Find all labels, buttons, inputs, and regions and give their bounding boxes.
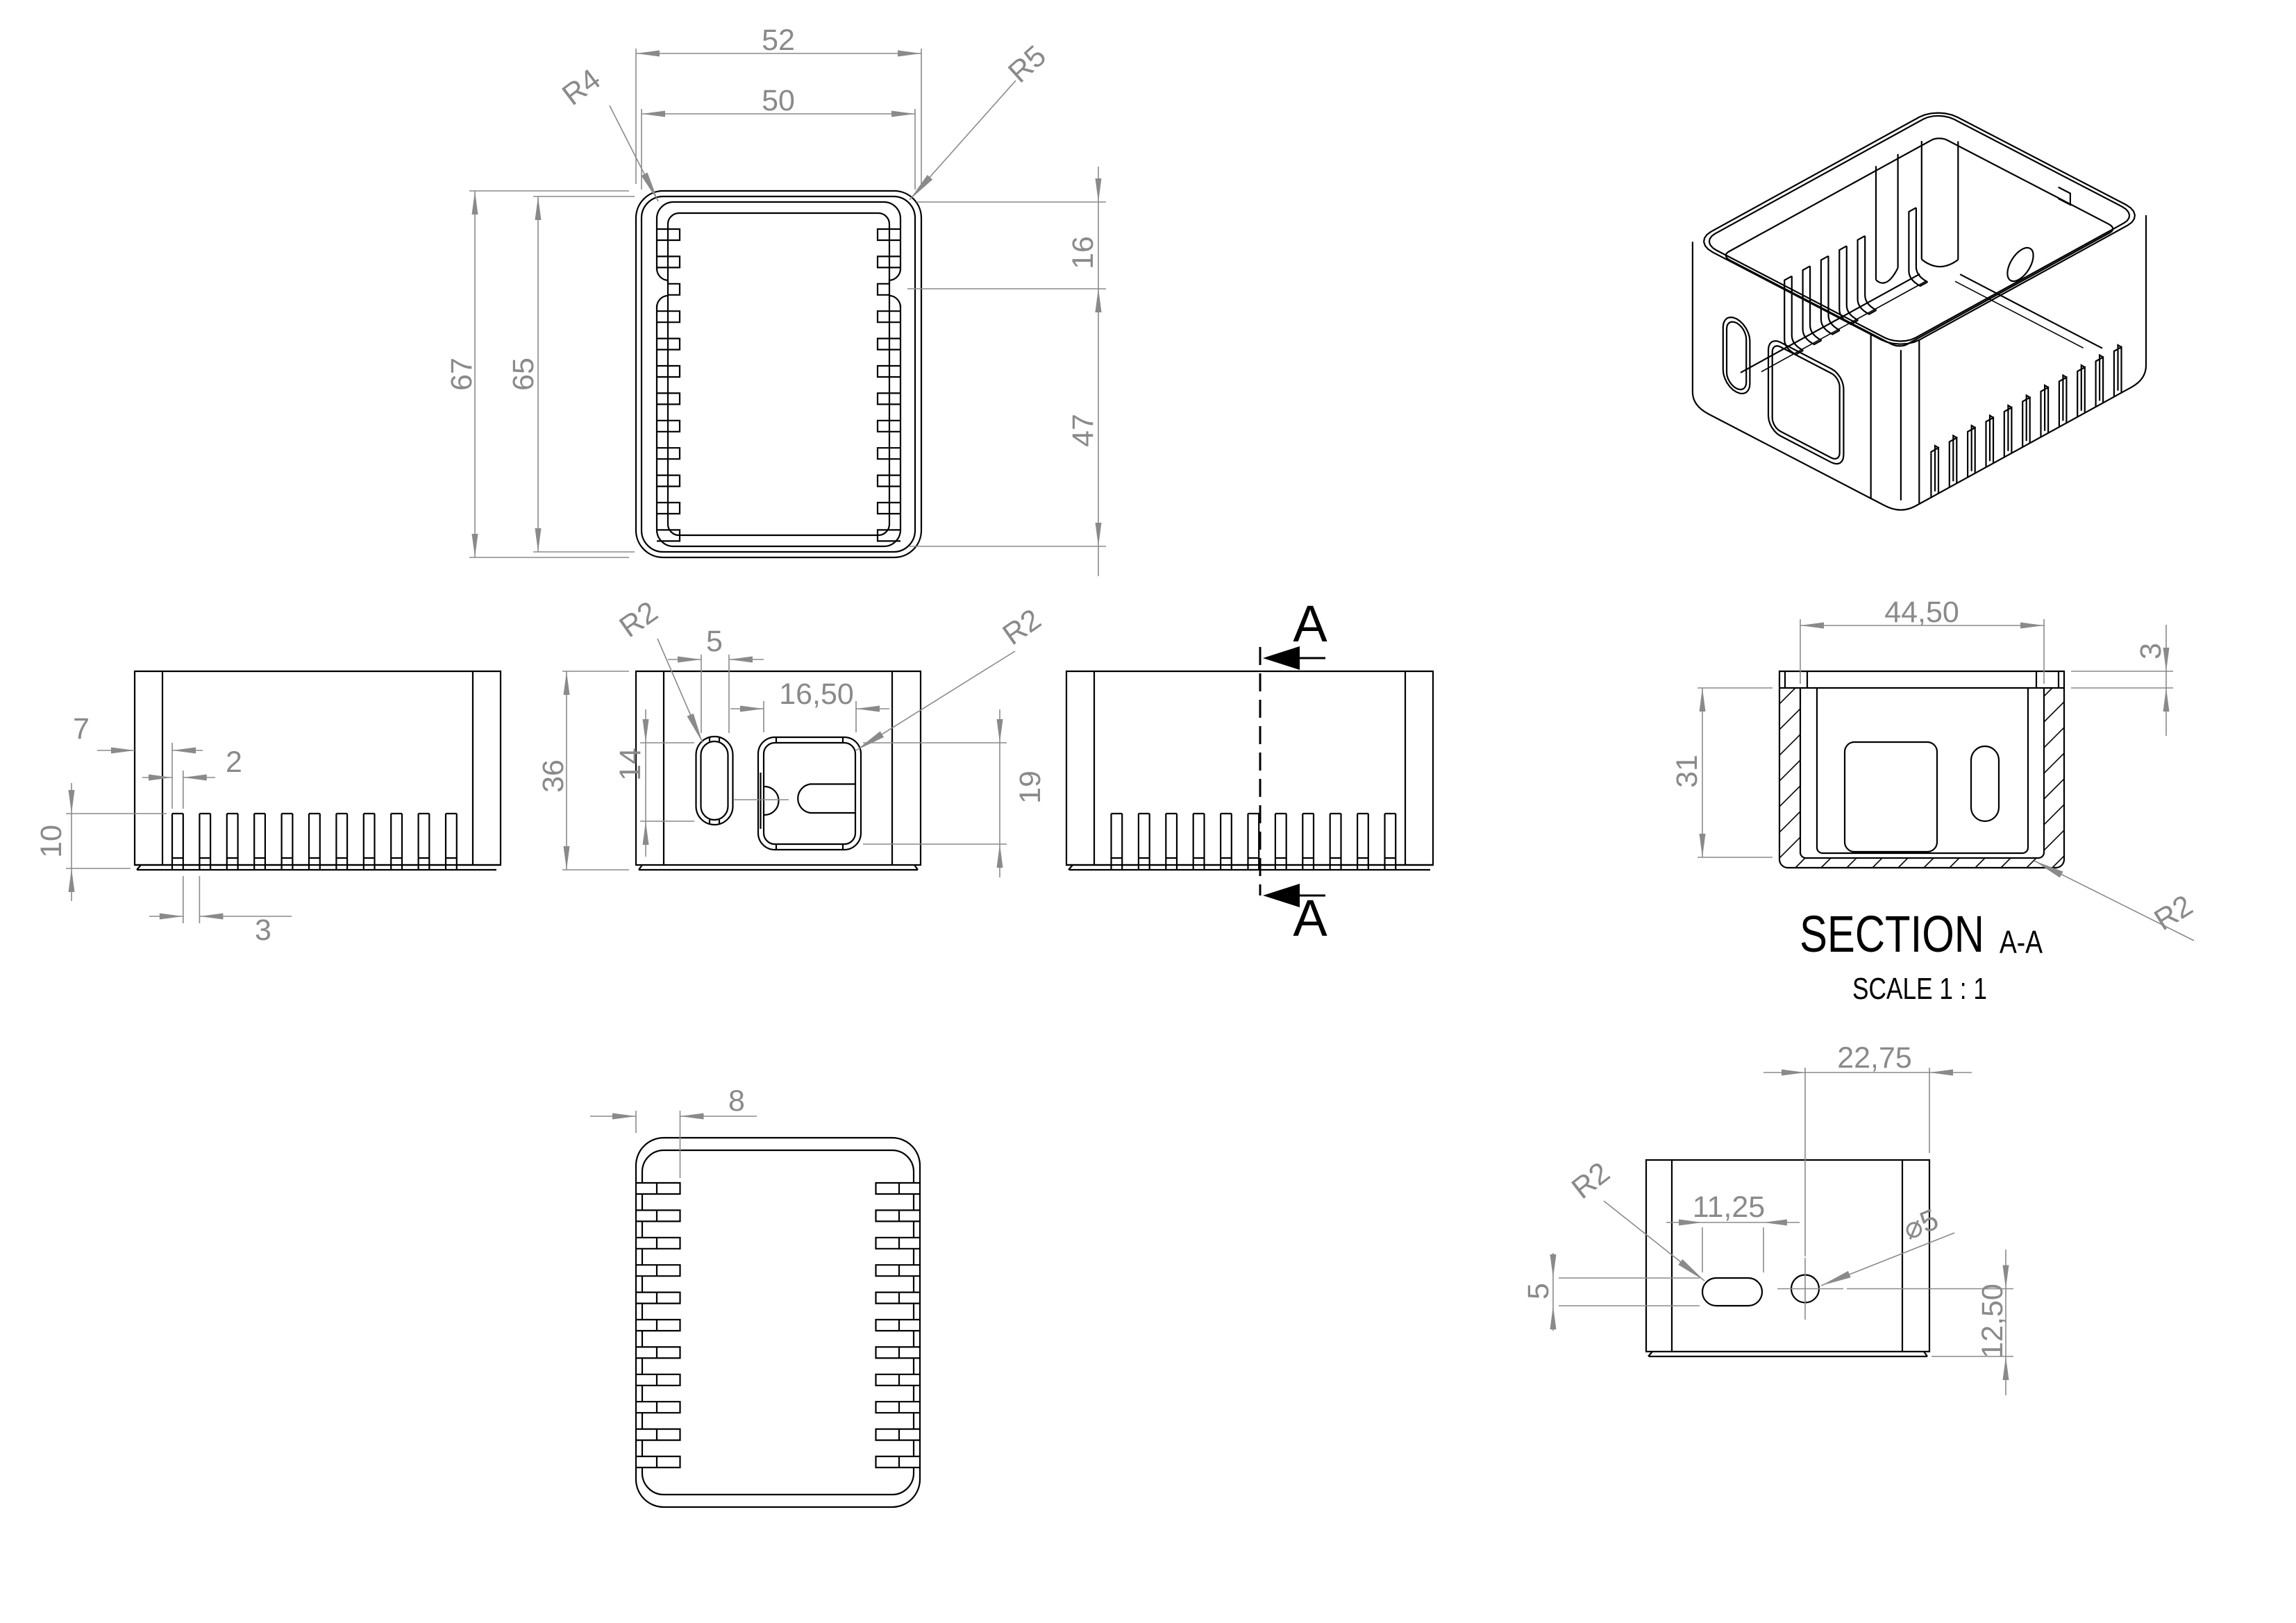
svg-text:47: 47: [1066, 414, 1100, 447]
svg-text:31: 31: [1670, 755, 1704, 788]
svg-text:16,50: 16,50: [779, 678, 854, 711]
svg-text:SCALE 1 : 1: SCALE 1 : 1: [1852, 972, 1987, 1006]
svg-text:36: 36: [537, 759, 570, 793]
svg-text:52: 52: [762, 24, 795, 57]
svg-text:11,25: 11,25: [1693, 1191, 1765, 1224]
svg-text:12,50: 12,50: [1976, 1284, 2009, 1359]
svg-text:A: A: [1293, 889, 1327, 947]
svg-text:5: 5: [706, 625, 723, 658]
svg-text:8: 8: [728, 1084, 745, 1118]
svg-text:22,75: 22,75: [1837, 1041, 1912, 1075]
svg-text:10: 10: [35, 825, 68, 858]
svg-text:14: 14: [614, 748, 647, 781]
svg-text:A: A: [1293, 595, 1327, 653]
svg-text:5: 5: [1522, 1283, 1555, 1300]
svg-text:16: 16: [1066, 236, 1100, 269]
svg-text:SECTION: SECTION: [1800, 905, 1984, 963]
svg-text:50: 50: [762, 84, 795, 117]
svg-text:65: 65: [507, 358, 540, 391]
svg-text:67: 67: [445, 358, 478, 391]
svg-text:7: 7: [73, 712, 90, 746]
svg-text:19: 19: [1014, 771, 1047, 804]
svg-text:A-A: A-A: [2000, 924, 2043, 960]
svg-text:3: 3: [2134, 643, 2168, 659]
svg-text:2: 2: [226, 746, 242, 779]
svg-text:44,50: 44,50: [1884, 596, 1959, 629]
svg-text:3: 3: [255, 914, 271, 947]
